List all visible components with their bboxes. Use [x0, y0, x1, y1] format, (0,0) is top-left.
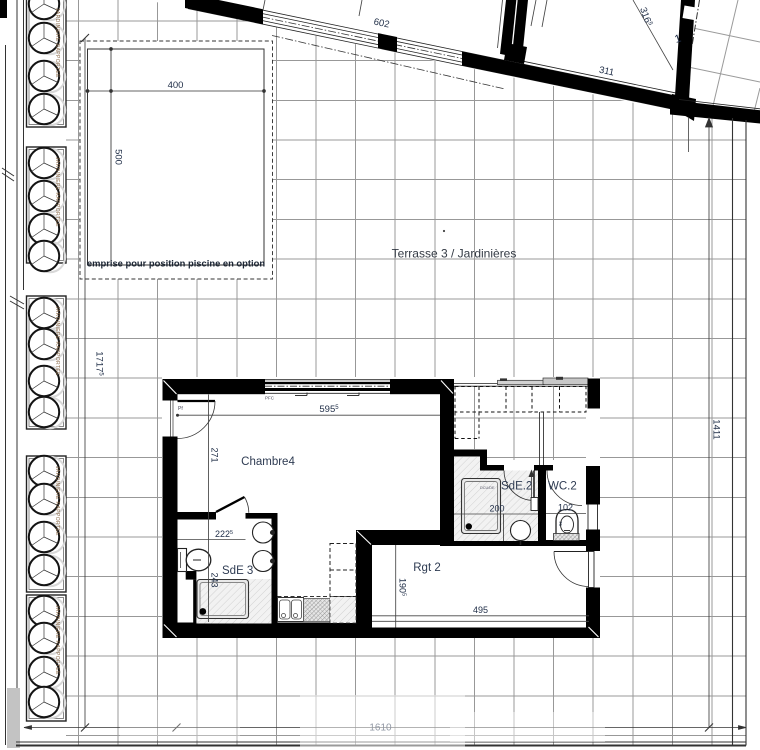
svg-text:1411: 1411: [711, 419, 722, 439]
svg-text:JARDINIERE RAPPORTEE: JARDINIERE RAPPORTEE: [54, 605, 60, 675]
svg-text:Rgt 2: Rgt 2: [413, 562, 441, 574]
svg-text:200: 200: [489, 504, 504, 514]
svg-text:PFC: PFC: [265, 396, 275, 401]
svg-text:JARDINIERE RAPPORTEE: JARDINIERE RAPPORTEE: [54, 306, 60, 376]
svg-text:SdE 3: SdE 3: [222, 565, 253, 577]
svg-text:Pf: Pf: [178, 406, 183, 412]
svg-text:DCU/DE: DCU/DE: [480, 486, 495, 490]
svg-text:500: 500: [113, 149, 124, 165]
svg-text:271: 271: [210, 447, 220, 462]
svg-text:WC.2: WC.2: [548, 481, 577, 493]
svg-text:JARDINIERE RAPPORTEE: JARDINIERE RAPPORTEE: [54, 8, 60, 78]
svg-text:Terrasse 3 / Jardinières: Terrasse 3 / Jardinières: [392, 247, 517, 261]
svg-text:495: 495: [473, 605, 488, 615]
svg-text:JARDINIERE RAPPORTEE: JARDINIERE RAPPORTEE: [54, 157, 60, 227]
svg-text:243: 243: [210, 572, 220, 587]
svg-text:JARDINIERE RAPPORTEE: JARDINIERE RAPPORTEE: [54, 466, 60, 536]
svg-text:Chambre4: Chambre4: [241, 456, 295, 468]
svg-text:102: 102: [558, 503, 573, 513]
svg-text:75: 75: [558, 521, 563, 527]
svg-text:400: 400: [168, 80, 184, 91]
svg-text:emprise pour position piscine: emprise pour position piscine en option: [87, 258, 265, 269]
svg-text:SdE.2: SdE.2: [501, 481, 532, 493]
